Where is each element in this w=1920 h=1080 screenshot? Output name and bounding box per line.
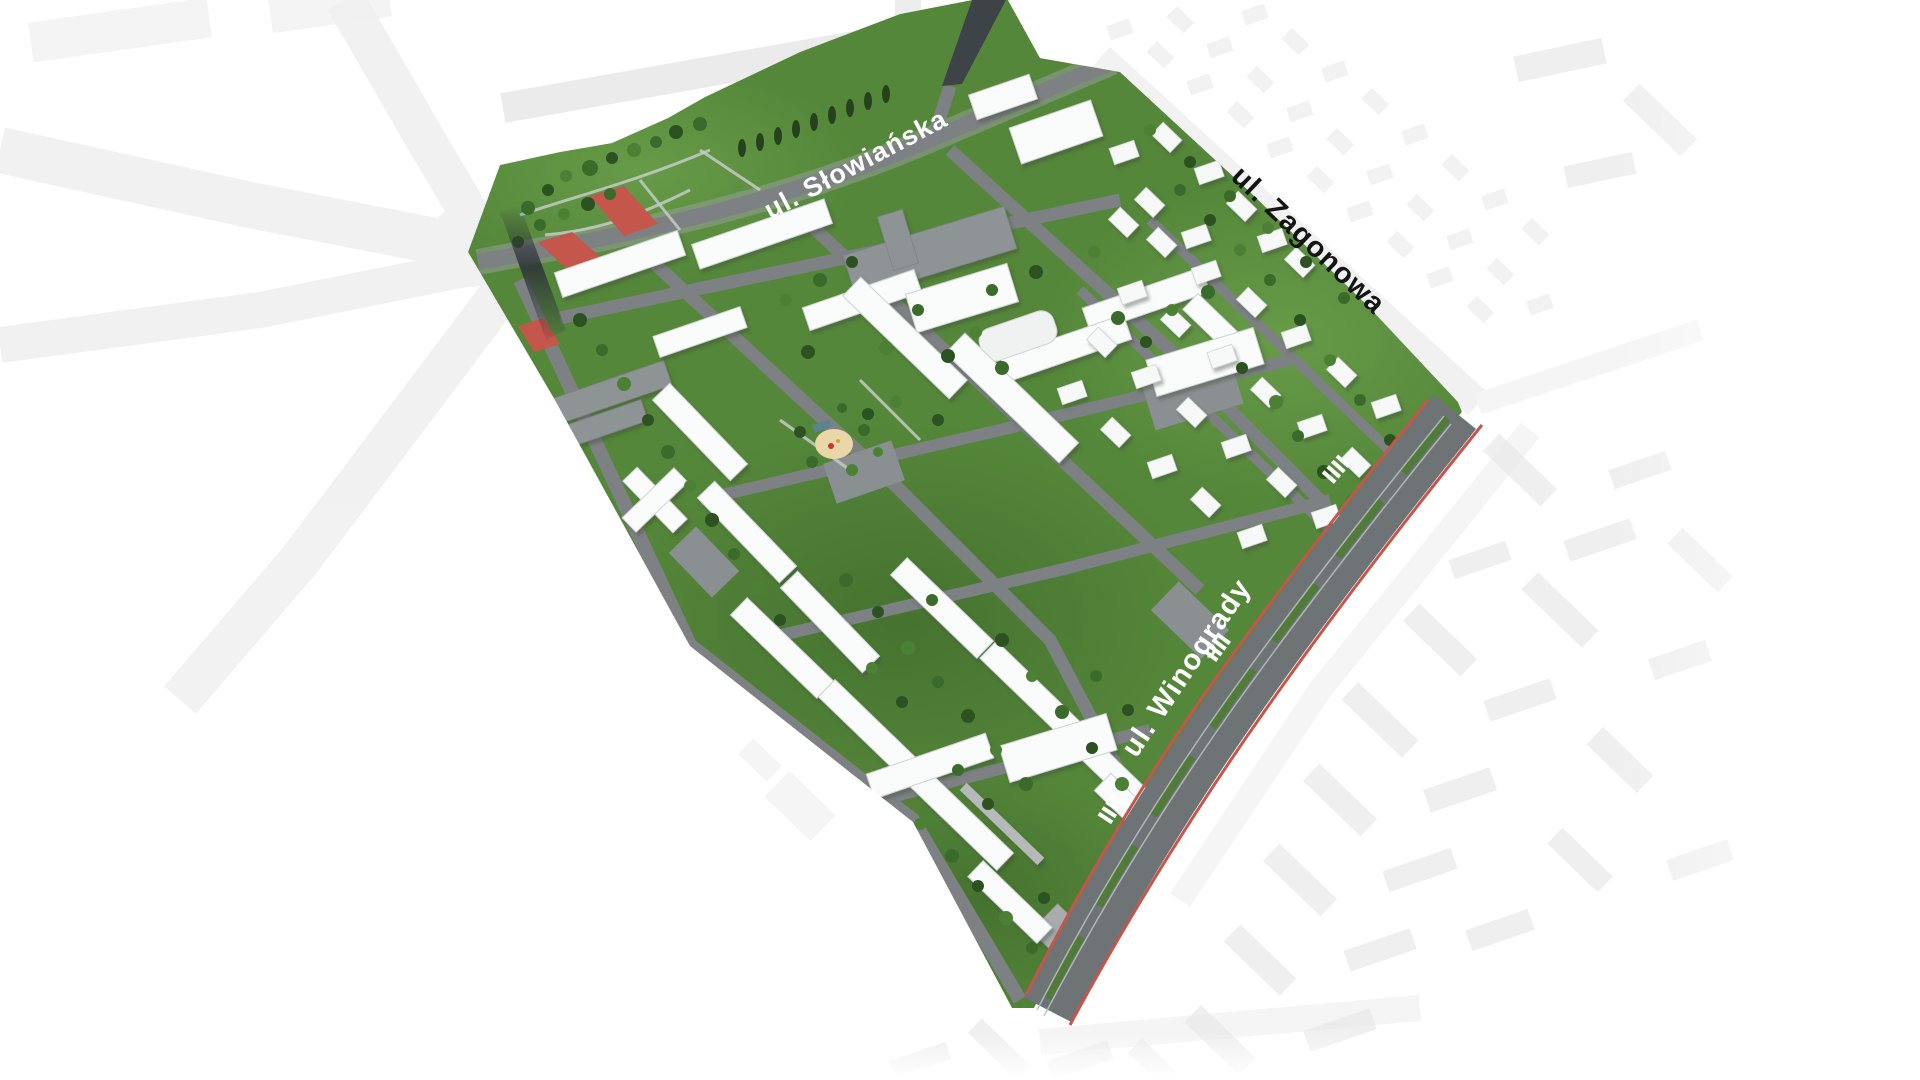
- edge-fade-bottom: [700, 1030, 1920, 1080]
- render-canvas: ul. Słowiańska ul. Zagonowa ul. Winograd…: [0, 0, 1920, 1080]
- playground-sand-circle: [815, 429, 853, 459]
- masterplan-map: ul. Słowiańska ul. Zagonowa ul. Winograd…: [0, 0, 1920, 1080]
- edge-fade-right: [1600, 0, 1920, 1080]
